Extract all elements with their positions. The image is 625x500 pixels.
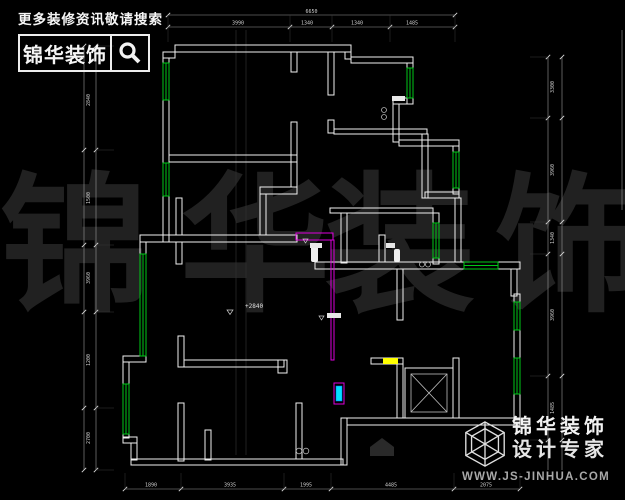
search-banner: 更多装修资讯敬请搜索 锦华装饰 [18,8,163,72]
fixture-symbols [227,96,431,456]
cad-floorplan-screenshot: 锦 华 装 饰 [0,0,625,500]
svg-text:2075: 2075 [480,483,492,489]
yellow-marker [383,358,398,364]
footer-website: WWW.JS-JINHUA.COM [462,471,610,483]
svg-text:4485: 4485 [385,483,397,489]
svg-text:1485: 1485 [550,402,556,414]
svg-text:6650: 6650 [305,9,317,15]
level-annotation: +2840 [245,303,263,310]
svg-text:1500: 1500 [86,192,92,204]
banner-tagline: 更多装修资讯敬请搜索 [18,8,163,28]
cube-logo-icon [462,420,508,468]
door-highlight [336,386,342,401]
walls-layer [123,45,520,465]
revision-lines [296,233,344,404]
svg-text:1995: 1995 [300,483,312,489]
svg-text:1890: 1890 [145,483,157,489]
svg-text:1340: 1340 [550,232,556,244]
footer-brand-subtitle: 设计专家 [512,439,608,462]
svg-text:3935: 3935 [224,483,236,489]
elevator-shaft [405,368,453,418]
svg-text:3960: 3960 [86,272,92,284]
svg-text:2840: 2840 [86,94,92,106]
svg-text:1485: 1485 [406,21,418,27]
svg-text:3960: 3960 [550,309,556,321]
svg-text:2700: 2700 [86,432,92,444]
brand-footer: 锦华装饰 设计专家 WWW.JS-JINHUA.COM [462,416,610,483]
brand-name: 锦华装饰 [20,39,110,68]
magnifier-icon [112,40,148,66]
svg-text:1340: 1340 [301,21,313,27]
windows-layer [123,63,520,434]
svg-text:3990: 3990 [232,21,244,27]
svg-text:3960: 3960 [550,164,556,176]
footer-brand-name: 锦华装饰 [512,416,608,439]
svg-text:1340: 1340 [351,21,363,27]
brand-search-box: 锦华装饰 [18,34,150,72]
svg-text:1200: 1200 [86,354,92,366]
svg-text:3300: 3300 [550,81,556,93]
